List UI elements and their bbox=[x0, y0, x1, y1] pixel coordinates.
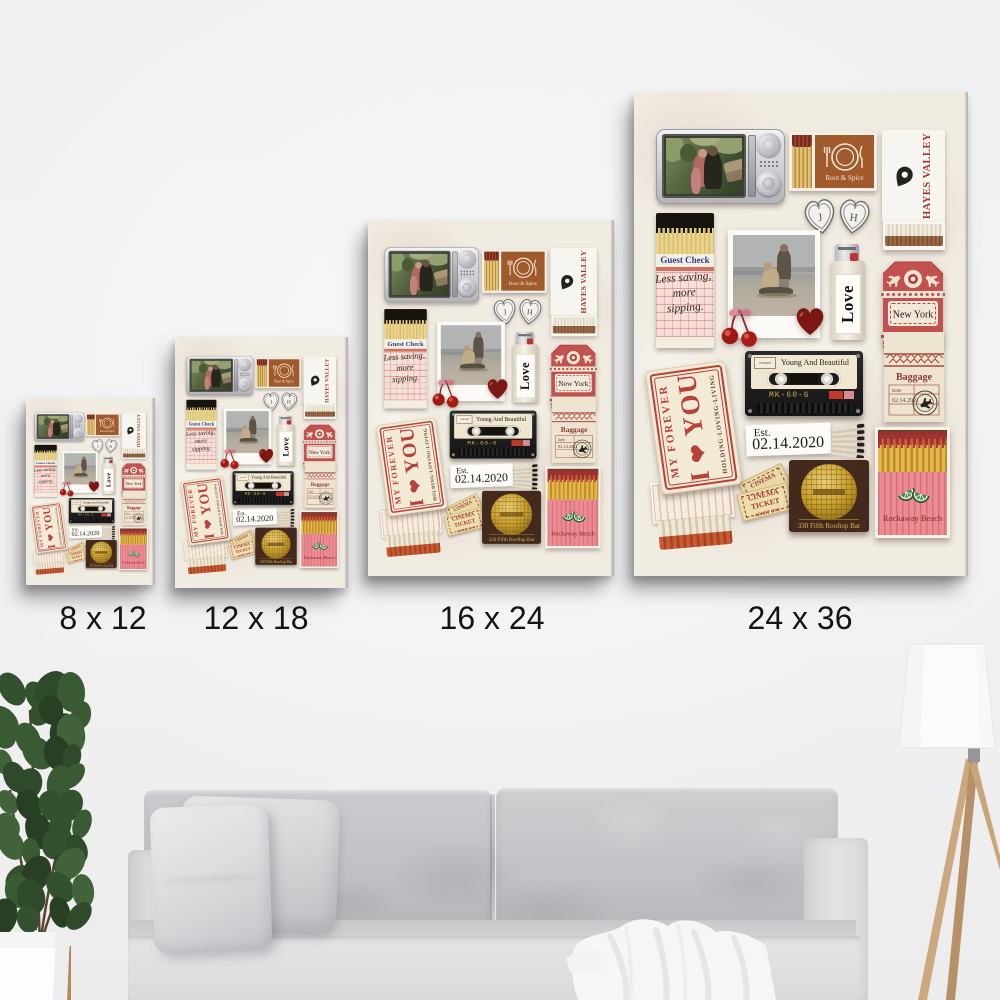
svg-text:HAYES VALLEY: HAYES VALLEY bbox=[922, 133, 933, 219]
svg-text:HAYES VALLEY: HAYES VALLEY bbox=[136, 414, 141, 447]
svg-text:New York: New York bbox=[893, 310, 934, 321]
svg-text:Baggage: Baggage bbox=[561, 425, 588, 434]
svg-text:Date: Date bbox=[558, 438, 565, 442]
svg-text:02.14.2021: 02.14.2021 bbox=[892, 398, 919, 404]
svg-text:Root & Spice: Root & Spice bbox=[825, 174, 863, 182]
svg-text:02.14.2021: 02.14.2021 bbox=[558, 444, 578, 449]
svg-text:H: H bbox=[109, 444, 113, 449]
svg-text:Baggage: Baggage bbox=[896, 372, 933, 383]
svg-text:02.14.2021: 02.14.2021 bbox=[309, 495, 323, 499]
svg-text:Root & Spice: Root & Spice bbox=[100, 430, 115, 433]
svg-text:H: H bbox=[849, 212, 858, 225]
svg-text:Date: Date bbox=[309, 490, 315, 493]
svg-text:Root & Spice: Root & Spice bbox=[509, 281, 538, 287]
svg-text:HAYES VALLEY: HAYES VALLEY bbox=[324, 358, 330, 402]
svg-text:New York: New York bbox=[558, 379, 588, 388]
svg-text:Root & Spice: Root & Spice bbox=[274, 380, 294, 384]
svg-text:H: H bbox=[286, 400, 291, 406]
svg-text:Date: Date bbox=[892, 388, 902, 393]
svg-text:Baggage: Baggage bbox=[127, 506, 141, 510]
svg-text:Baggage: Baggage bbox=[311, 482, 330, 488]
svg-text:New York: New York bbox=[309, 450, 330, 456]
svg-text:Date: Date bbox=[126, 512, 130, 515]
svg-text:New York: New York bbox=[126, 482, 142, 486]
svg-text:HAYES VALLEY: HAYES VALLEY bbox=[579, 250, 588, 313]
